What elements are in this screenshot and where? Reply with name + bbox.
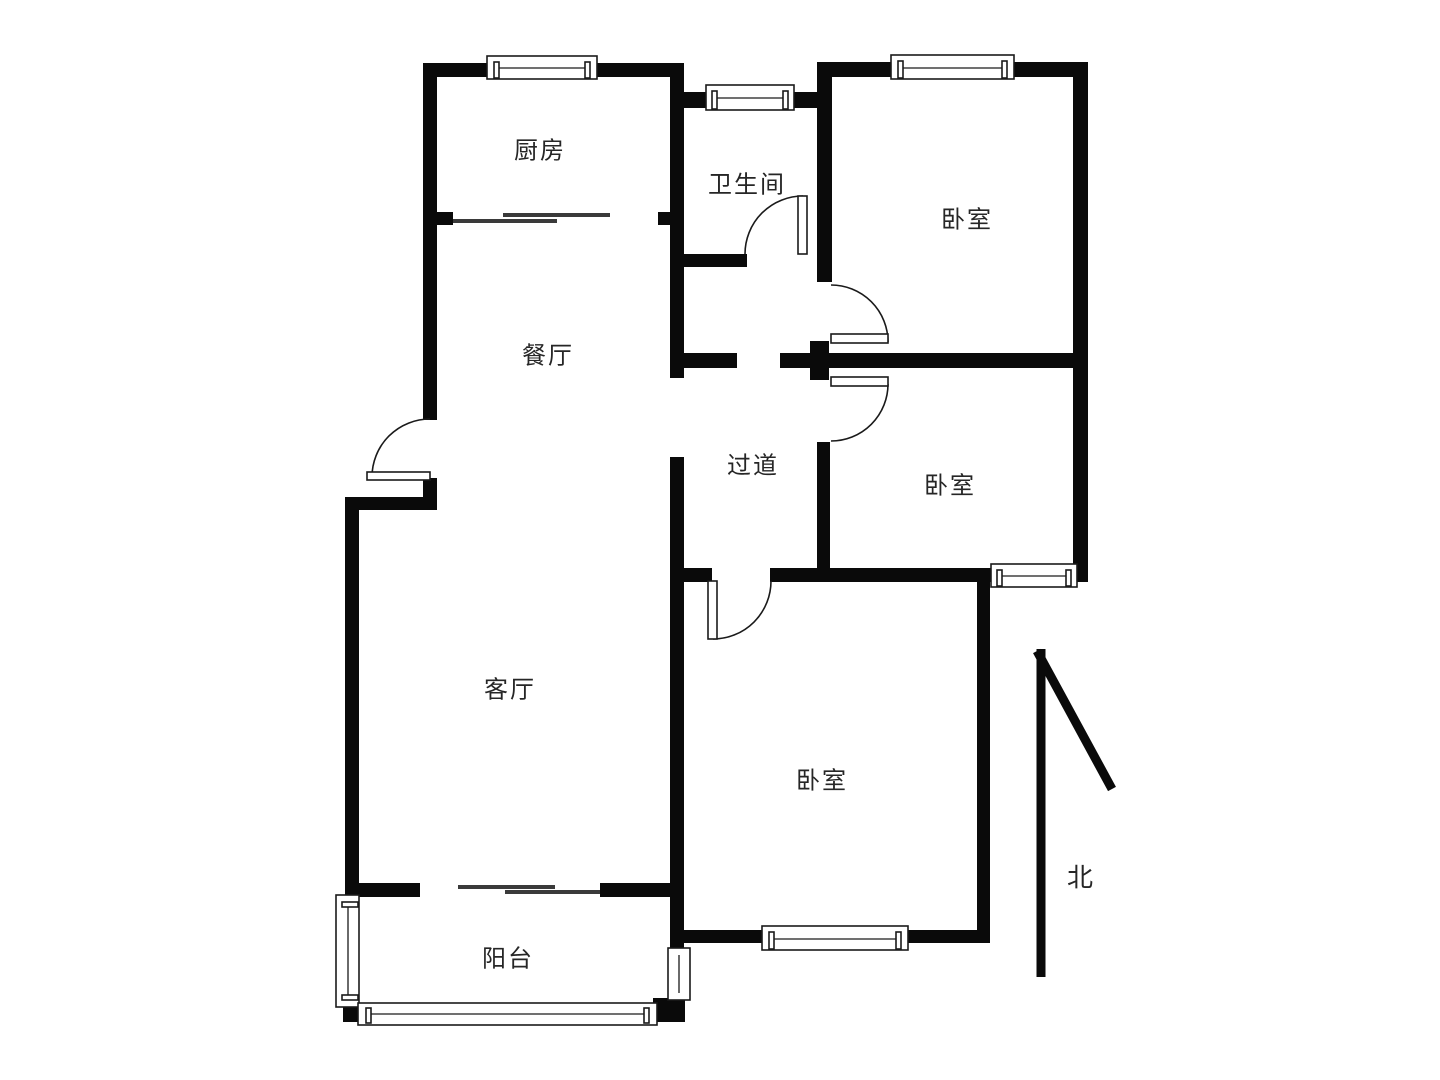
bathroom-door (745, 196, 807, 254)
bedroom-bottom-window (762, 926, 908, 950)
bedroom-bottom-label: 卧室 (796, 761, 848, 796)
bedroom-middle-label: 卧室 (924, 466, 976, 501)
balcony-sliding-door (458, 885, 600, 894)
bedroom-top-label: 卧室 (941, 200, 993, 235)
floor-plan: 厨房 卫生间 卧室 餐厅 过道 卧室 客厅 卧室 阳台 北 (0, 0, 1440, 1080)
north-arrow-icon (1037, 649, 1112, 977)
kitchen-sliding-door (453, 213, 610, 223)
bedroom-bottom-door (708, 581, 771, 639)
kitchen-window (487, 56, 597, 79)
living-label: 客厅 (484, 670, 536, 705)
bedroom-middle-door (831, 377, 888, 441)
north-label: 北 (1067, 858, 1093, 895)
bathroom-window (706, 85, 794, 110)
bathroom-label: 卫生间 (708, 165, 786, 200)
hallway-label: 过道 (727, 446, 779, 481)
balcony-left-window (336, 895, 359, 1007)
floor-plan-drawing (0, 0, 1440, 1080)
bedroom-middle-window (991, 564, 1077, 587)
balcony-label: 阳台 (482, 939, 534, 974)
kitchen-label: 厨房 (514, 131, 566, 166)
bedroom-top-window (891, 55, 1014, 79)
balcony-bottom-window (358, 1003, 657, 1025)
balcony-right-window (668, 948, 690, 1000)
bedroom-top-door (831, 285, 888, 343)
dining-label: 餐厅 (522, 336, 574, 371)
entry-door (367, 419, 430, 480)
